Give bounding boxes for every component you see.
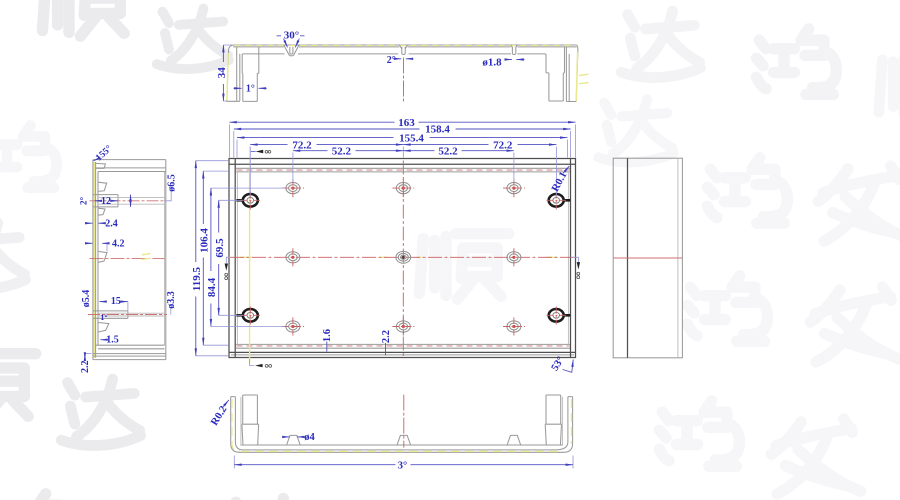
svg-text:1°: 1° — [246, 84, 255, 95]
svg-text:84.4: 84.4 — [206, 277, 218, 297]
svg-text:ø1.8: ø1.8 — [482, 57, 502, 69]
svg-text:12: 12 — [101, 196, 111, 207]
svg-text:4.2: 4.2 — [112, 239, 125, 250]
svg-text:ø6.5: ø6.5 — [167, 174, 178, 192]
svg-text:ø3.3: ø3.3 — [166, 291, 177, 309]
svg-text:R0.2: R0.2 — [209, 404, 229, 427]
svg-text:1.6: 1.6 — [322, 329, 333, 342]
svg-text:52.2: 52.2 — [438, 145, 458, 157]
svg-text:155.4: 155.4 — [399, 132, 424, 144]
svg-text:2°: 2° — [387, 55, 396, 66]
svg-text:30°: 30° — [284, 30, 299, 42]
svg-text:34: 34 — [216, 67, 228, 79]
svg-text:72.2: 72.2 — [493, 139, 513, 151]
svg-text:ø4: ø4 — [304, 432, 315, 443]
svg-text:106.4: 106.4 — [198, 228, 210, 253]
svg-text:163: 163 — [398, 117, 415, 129]
svg-text:2.2: 2.2 — [381, 330, 392, 343]
svg-text:15: 15 — [111, 296, 121, 307]
svg-text:158.4: 158.4 — [425, 124, 450, 136]
svg-text:155°: 155° — [94, 143, 115, 163]
svg-text:69.5: 69.5 — [214, 238, 226, 258]
svg-text:119.5: 119.5 — [191, 266, 203, 291]
svg-text:1.5: 1.5 — [106, 335, 119, 346]
svg-text:2°: 2° — [79, 196, 89, 205]
svg-text:2.2: 2.2 — [80, 361, 91, 374]
svg-text:2.4: 2.4 — [105, 219, 118, 230]
svg-text:52.2: 52.2 — [332, 145, 352, 157]
svg-text:R0.1: R0.1 — [550, 170, 569, 193]
svg-text:ø5.4: ø5.4 — [81, 290, 92, 308]
svg-text:72.2: 72.2 — [292, 139, 312, 151]
svg-text:1°: 1° — [100, 313, 107, 322]
svg-text:3°: 3° — [398, 460, 407, 471]
